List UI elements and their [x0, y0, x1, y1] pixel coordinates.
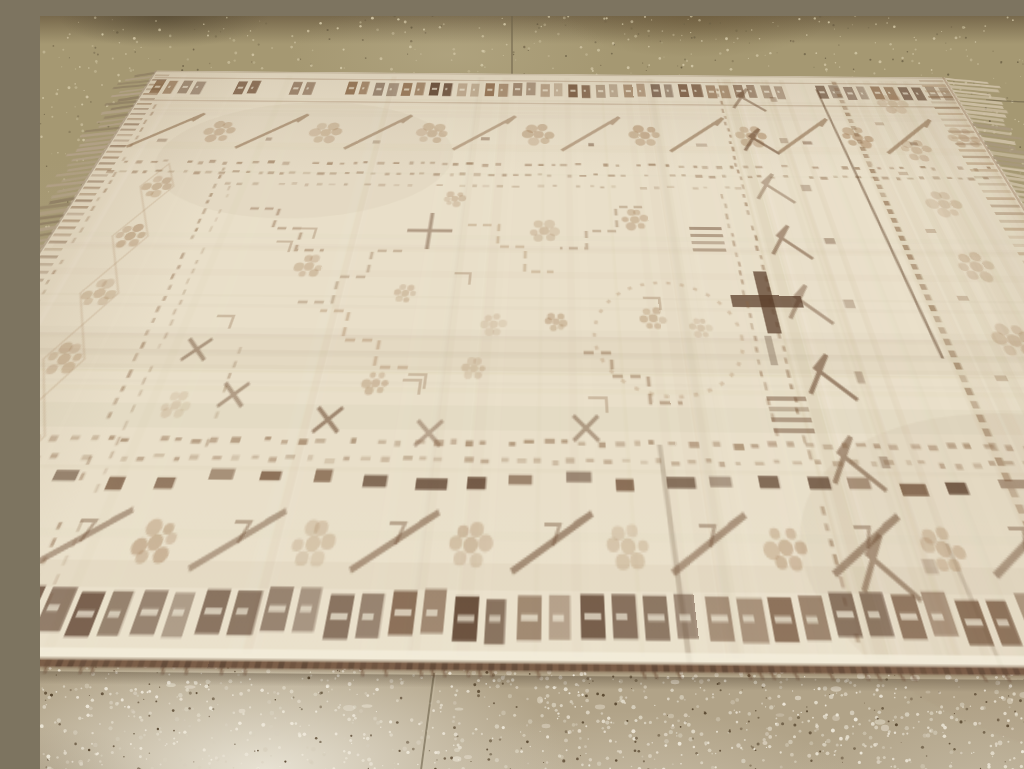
rug — [40, 71, 1024, 678]
rug-photo: Worn antique cream handmade rug on a spe… — [40, 16, 1024, 769]
rug-artwork — [40, 71, 1024, 678]
rug-shading — [40, 71, 1024, 678]
